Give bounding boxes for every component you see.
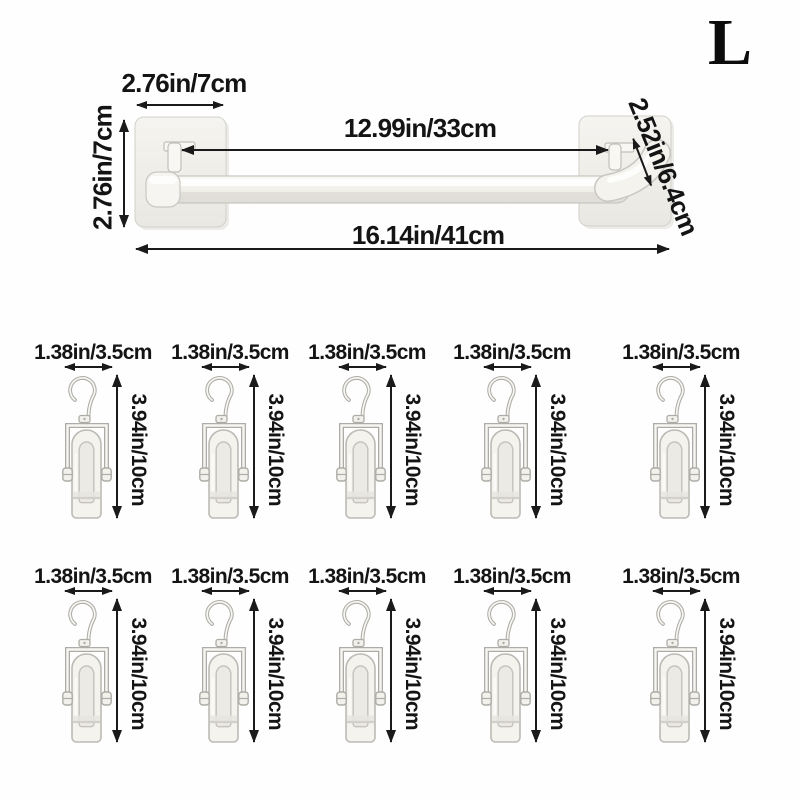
hanger-width-label: 1.38in/3.5cm — [23, 565, 163, 589]
hanger-width-arrow — [339, 366, 386, 368]
swivel-joint — [498, 640, 509, 647]
hanger-clip-item: 1.38in/3.5cm — [155, 341, 305, 536]
hanger-width-arrow — [339, 590, 386, 592]
hanger-height-arrow — [253, 375, 255, 518]
clip-body — [491, 654, 520, 742]
plate-height-arrow — [123, 120, 125, 227]
total-length-arrow — [136, 248, 669, 250]
swivel-hook — [207, 602, 232, 641]
hanger-clip-item: 1.38in/3.5cm — [437, 341, 587, 536]
swivel-hook — [658, 602, 683, 641]
hanger-clip-illustration — [199, 597, 249, 743]
hanger-width-arrow — [484, 590, 531, 592]
hanger-clip-item: 1.38in/3.5cm — [155, 565, 305, 760]
hanger-width-label: 1.38in/3.5cm — [611, 565, 751, 589]
hanger-width-label: 1.38in/3.5cm — [442, 565, 582, 589]
hanger-height-label: 3.94in/10cm — [545, 388, 569, 512]
swivel-joint — [667, 416, 678, 423]
plate-width-arrow — [137, 104, 223, 106]
hanger-clip-illustration — [199, 373, 249, 519]
swivel-hook — [70, 378, 95, 417]
hanger-height-arrow — [390, 599, 392, 742]
hanger-height-label: 3.94in/10cm — [400, 388, 424, 512]
swivel-hook — [344, 602, 369, 641]
plate-width-label: 2.76in/7cm — [99, 69, 269, 98]
hanger-clip-item: 1.38in/3.5cm — [292, 341, 442, 536]
clip-body — [491, 430, 520, 518]
swivel-hook — [344, 378, 369, 417]
hanger-width-label: 1.38in/3.5cm — [297, 341, 437, 365]
clip-body — [209, 430, 238, 518]
hanger-clip-illustration — [650, 373, 700, 519]
hanger-width-label: 1.38in/3.5cm — [160, 341, 300, 365]
swivel-hook — [207, 378, 232, 417]
plate-height-label: 2.76in/7cm — [88, 83, 117, 253]
hanger-height-arrow — [253, 599, 255, 742]
clip-body — [660, 430, 689, 518]
total-length-label: 16.14in/41cm — [328, 221, 528, 250]
hanger-width-arrow — [202, 590, 249, 592]
hanger-width-arrow — [653, 590, 700, 592]
hanger-clip-illustration — [481, 597, 531, 743]
swivel-joint — [79, 640, 90, 647]
hanger-width-label: 1.38in/3.5cm — [23, 341, 163, 365]
hanger-width-label: 1.38in/3.5cm — [160, 565, 300, 589]
swivel-joint — [353, 416, 364, 423]
hanger-clip-illustration — [336, 597, 386, 743]
clip-body — [660, 654, 689, 742]
hanger-clip-item: 1.38in/3.5cm — [18, 565, 168, 760]
swivel-joint — [498, 416, 509, 423]
hanger-width-label: 1.38in/3.5cm — [297, 565, 437, 589]
clip-body — [72, 654, 101, 742]
swivel-joint — [216, 640, 227, 647]
hanger-clip-illustration — [650, 597, 700, 743]
clip-body — [72, 430, 101, 518]
hanger-clip-item: 1.38in/3.5cm — [606, 341, 756, 536]
hanger-height-label: 3.94in/10cm — [545, 612, 569, 736]
hanger-height-arrow — [116, 375, 118, 518]
hanger-clip-illustration — [481, 373, 531, 519]
hanger-height-label: 3.94in/10cm — [714, 388, 738, 512]
hanger-height-label: 3.94in/10cm — [126, 612, 150, 736]
hanger-clip-item: 1.38in/3.5cm — [292, 565, 442, 760]
swivel-hook — [658, 378, 683, 417]
hanger-clip-illustration — [62, 373, 112, 519]
swivel-joint — [79, 416, 90, 423]
hanger-height-arrow — [704, 599, 706, 742]
left-mounting-plate — [135, 117, 229, 230]
size-label: L — [698, 10, 762, 76]
hanger-height-arrow — [535, 599, 537, 742]
swivel-hook — [70, 602, 95, 641]
clip-body — [209, 654, 238, 742]
hanger-width-label: 1.38in/3.5cm — [611, 341, 751, 365]
hanger-height-label: 3.94in/10cm — [263, 612, 287, 736]
swivel-hook — [489, 378, 514, 417]
hanger-width-arrow — [65, 590, 112, 592]
hanger-height-arrow — [535, 375, 537, 518]
hanger-width-arrow — [484, 366, 531, 368]
hanger-height-arrow — [116, 599, 118, 742]
hanger-clip-illustration — [62, 597, 112, 743]
rod-inner-length-label: 12.99in/33cm — [320, 114, 520, 143]
hanger-height-label: 3.94in/10cm — [126, 388, 150, 512]
swivel-joint — [216, 416, 227, 423]
hanger-clip-item: 1.38in/3.5cm — [18, 341, 168, 536]
hanger-height-arrow — [704, 375, 706, 518]
hanger-height-arrow — [390, 375, 392, 518]
hanger-height-label: 3.94in/10cm — [400, 612, 424, 736]
rod-inner-length-arrow — [182, 149, 608, 151]
hanger-height-label: 3.94in/10cm — [714, 612, 738, 736]
swivel-joint — [667, 640, 678, 647]
hanger-height-label: 3.94in/10cm — [263, 388, 287, 512]
hanger-width-label: 1.38in/3.5cm — [442, 341, 582, 365]
hanger-clip-item: 1.38in/3.5cm — [606, 565, 756, 760]
swivel-hook — [489, 602, 514, 641]
hanger-width-arrow — [653, 366, 700, 368]
hanger-clip-illustration — [336, 373, 386, 519]
hanger-width-arrow — [65, 366, 112, 368]
product-dimension-infographic: { "size_label": "L", "rack": { "plate_wi… — [0, 0, 800, 800]
swivel-joint — [353, 640, 364, 647]
hanger-clip-item: 1.38in/3.5cm — [437, 565, 587, 760]
clip-body — [346, 654, 375, 742]
hanger-width-arrow — [202, 366, 249, 368]
clip-body — [346, 430, 375, 518]
